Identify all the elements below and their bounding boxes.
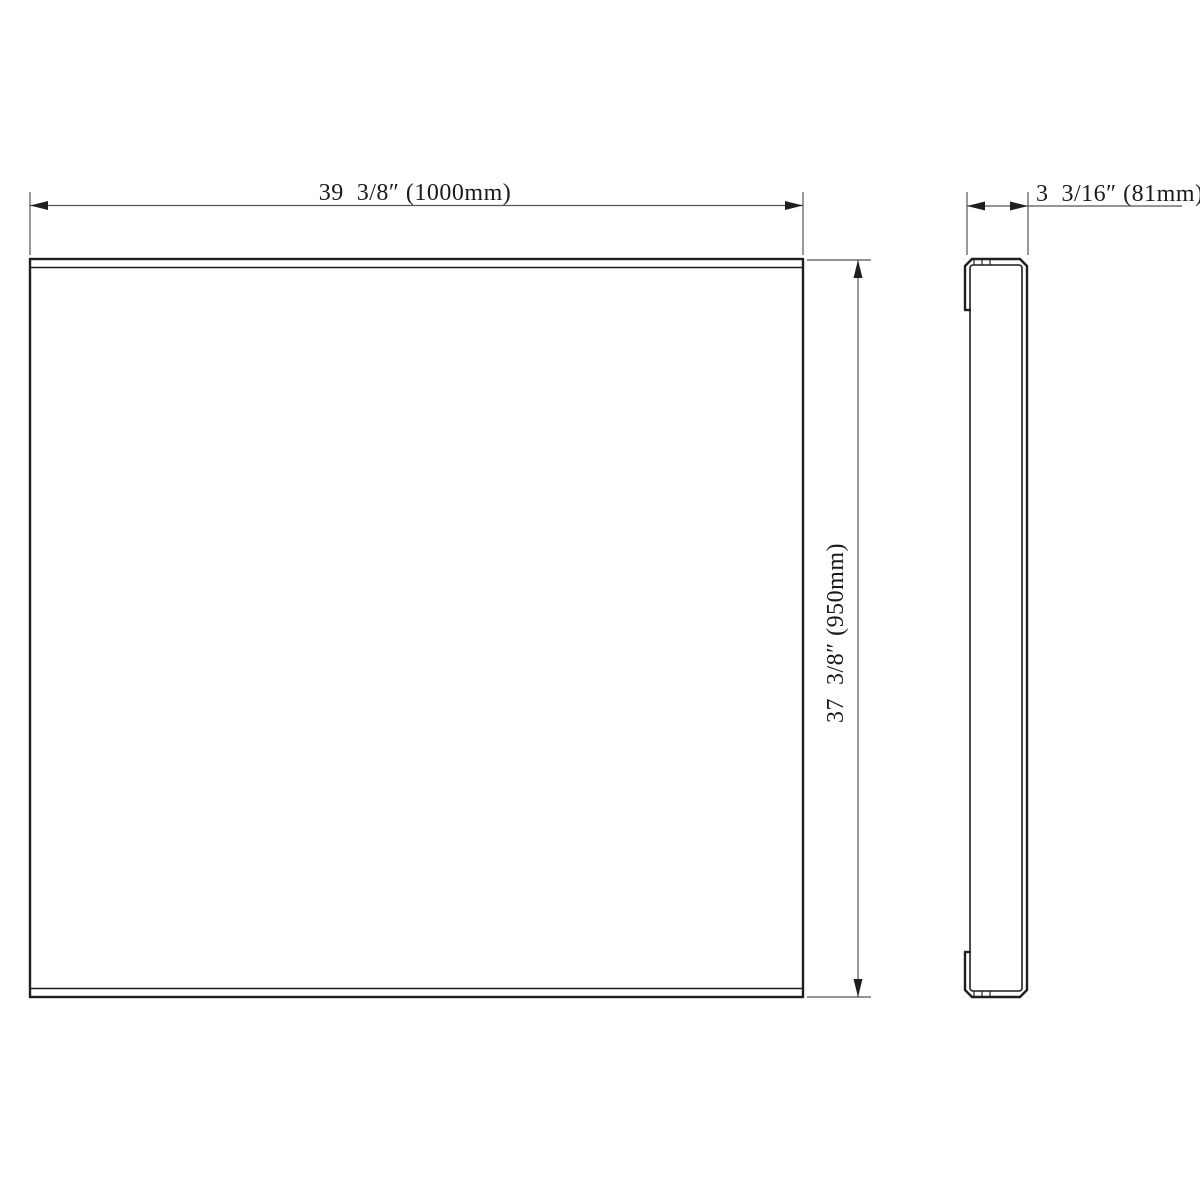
side-profile-inner-line — [970, 265, 1022, 991]
height-dimension: 37 3/8″ (950mm) — [807, 260, 871, 997]
depth-dimension: 3 3/16″ (81mm) — [967, 181, 1200, 255]
side-profile-outline — [965, 259, 1027, 997]
arrow-right-icon — [1010, 202, 1028, 211]
arrow-right-icon — [785, 201, 803, 210]
arrow-down-icon — [854, 979, 863, 997]
arrow-left-icon — [967, 202, 985, 211]
side-view — [964, 259, 1027, 997]
front-view — [30, 259, 803, 997]
technical-drawing: 39 3/8″ (1000mm) 37 3/8″ (950mm) — [0, 0, 1200, 1200]
width-dimension: 39 3/8″ (1000mm) — [30, 180, 803, 255]
arrow-up-icon — [854, 260, 863, 278]
arrow-left-icon — [30, 201, 48, 210]
width-dimension-label: 39 3/8″ (1000mm) — [319, 180, 511, 206]
depth-dimension-label: 3 3/16″ (81mm) — [1036, 181, 1200, 207]
height-dimension-label: 37 3/8″ (950mm) — [823, 543, 849, 723]
front-panel-outline — [30, 259, 803, 997]
drawing-canvas: 39 3/8″ (1000mm) 37 3/8″ (950mm) — [0, 0, 1200, 1200]
